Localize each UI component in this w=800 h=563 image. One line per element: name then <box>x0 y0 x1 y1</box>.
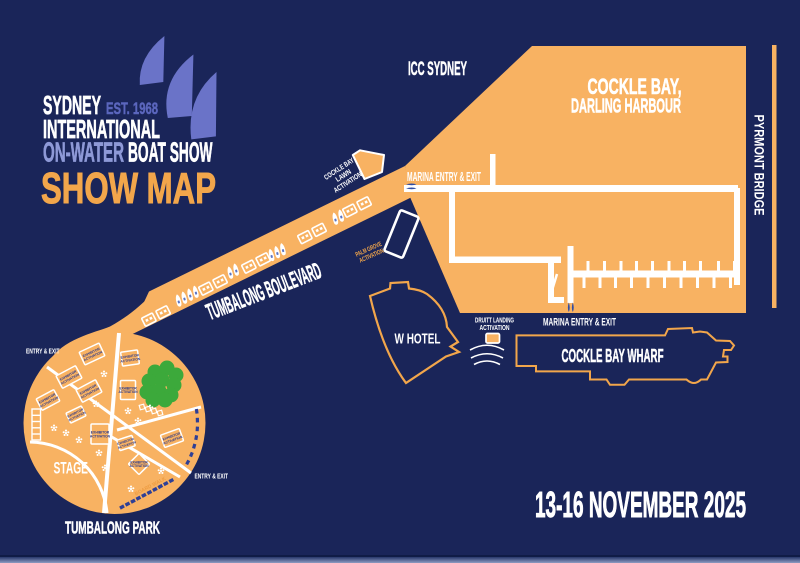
svg-text:PYRMONT BRIDGE: PYRMONT BRIDGE <box>752 115 767 216</box>
svg-text:13-16 NOVEMBER 2025: 13-16 NOVEMBER 2025 <box>535 484 746 525</box>
svg-text:ENTRY & EXIT: ENTRY & EXIT <box>26 347 60 356</box>
svg-text:MARINA ENTRY & EXIT: MARINA ENTRY & EXIT <box>543 317 616 329</box>
svg-text:BOAT SHOW: BOAT SHOW <box>128 137 213 168</box>
svg-text:ICC SYDNEY: ICC SYDNEY <box>408 59 467 80</box>
svg-text:STAGE: STAGE <box>54 460 89 478</box>
svg-text:DARLING HARBOUR: DARLING HARBOUR <box>571 96 681 118</box>
svg-text:SHOW MAP: SHOW MAP <box>41 164 216 213</box>
svg-text:ACTIVATION: ACTIVATION <box>480 323 510 332</box>
svg-text:W HOTEL: W HOTEL <box>395 331 441 348</box>
svg-text:MARINA ENTRY & EXIT: MARINA ENTRY & EXIT <box>407 169 481 184</box>
svg-text:ACTIVATION: ACTIVATION <box>118 390 138 394</box>
svg-text:TUMBALONG PARK: TUMBALONG PARK <box>65 518 160 538</box>
svg-text:ENTRY & EXIT: ENTRY & EXIT <box>195 472 229 481</box>
svg-text:ON-WATER: ON-WATER <box>43 137 124 168</box>
svg-text:ACTIVATION: ACTIVATION <box>129 464 149 468</box>
svg-text:ACTIVATION: ACTIVATION <box>90 434 111 438</box>
svg-text:COCKLE BAY WHARF: COCKLE BAY WHARF <box>562 346 664 366</box>
